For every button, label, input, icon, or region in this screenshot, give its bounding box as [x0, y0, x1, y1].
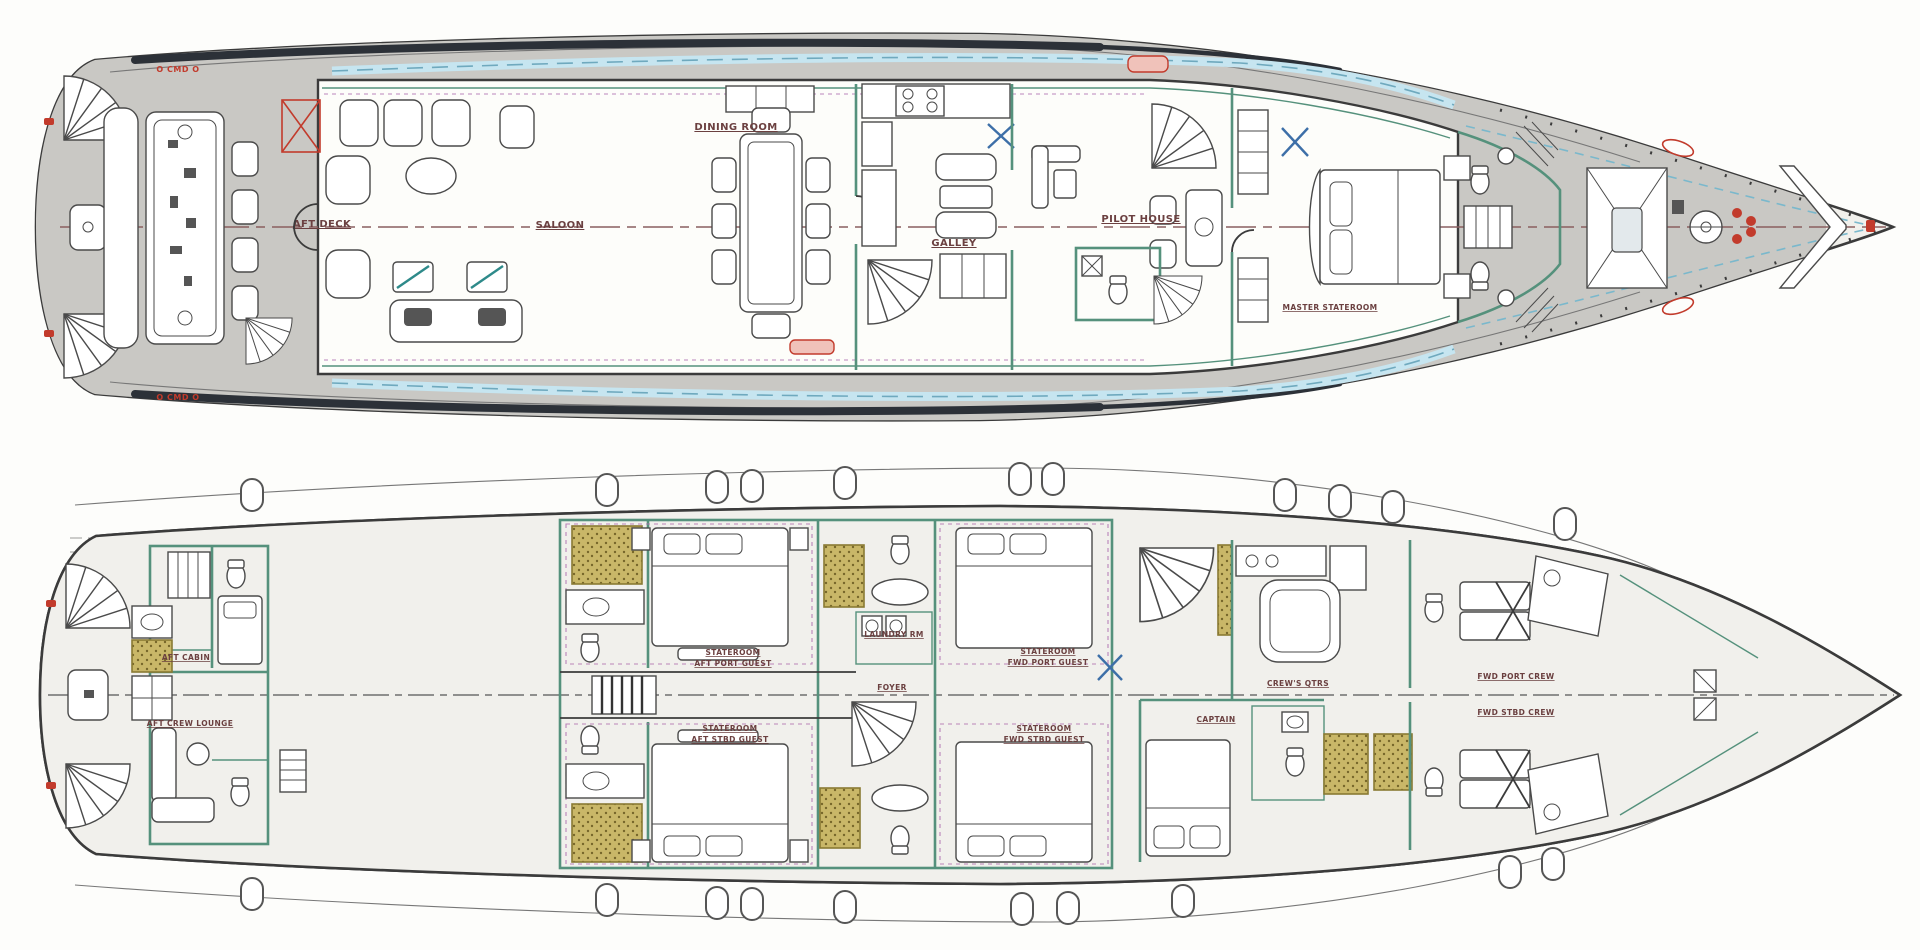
lounge-chair: [326, 250, 370, 298]
fridge: [862, 122, 892, 166]
nightstand: [1444, 156, 1470, 180]
label-sr-fwd-stbd-1: STATEROOM: [1017, 724, 1072, 733]
tub: [872, 785, 928, 811]
crew-head-toilet: [1425, 768, 1443, 796]
dinette-booth: [936, 154, 996, 238]
label-sr-fwd-port-1: STATEROOM: [1021, 647, 1076, 656]
crew-toilet-2: [231, 778, 249, 806]
mess-cabinet: [1330, 546, 1366, 590]
armchair: [500, 106, 534, 148]
captain-bed: [1146, 740, 1230, 856]
label-sr-aft-port-1: STATEROOM: [706, 648, 761, 657]
sink: [1498, 290, 1514, 306]
crew-companionway: [168, 552, 210, 598]
side-table: [467, 262, 507, 292]
main-deck-plan: AFT DECK O CMD O O CMD O: [36, 30, 1893, 430]
engine-room-ladder: [280, 750, 306, 792]
crew-head-toilet: [1425, 594, 1443, 622]
label-saloon: SALOON: [536, 220, 585, 231]
stateroom-fwd-port: STATEROOM FWD PORT GUEST: [940, 524, 1108, 667]
label-aft-deck: AFT DECK: [293, 219, 352, 230]
label-dining-room: DINING ROOM: [694, 122, 777, 133]
closet: [1238, 258, 1268, 322]
helm-chair: [1150, 240, 1176, 268]
guest-bed: [652, 744, 788, 862]
label-aft-crew-lounge: AFT CREW LOUNGE: [147, 719, 233, 728]
label-foyer: FOYER: [877, 683, 907, 692]
label-sr-fwd-port-2: FWD PORT GUEST: [1008, 658, 1089, 667]
windlass: [1690, 211, 1722, 243]
coffee-table: [406, 158, 456, 194]
label-fwd-stbd-crew: FWD STBD CREW: [1477, 708, 1555, 717]
deck-fitting: [790, 340, 834, 354]
ensuite-toilet: [581, 634, 599, 662]
sink: [1498, 148, 1514, 164]
guest-bed: [956, 742, 1092, 862]
helm-wheel: [1195, 218, 1213, 236]
galley-island: [862, 170, 896, 246]
guest-bed: [652, 528, 788, 646]
deck-plans-svg: AFT DECK O CMD O O CMD O: [0, 0, 1920, 950]
label-cmd-stbd: O CMD O: [156, 393, 199, 402]
side-table: [393, 262, 433, 292]
label-captain: CAPTAIN: [1196, 715, 1235, 724]
mast-fitting: [1128, 56, 1168, 72]
nightstand: [1444, 274, 1470, 298]
scanned-deck-plan-page: AFT DECK O CMD O O CMD O: [0, 0, 1920, 950]
tub: [872, 579, 928, 605]
skylight-hatch: [1587, 168, 1667, 288]
label-laundry: LAUNDRY RM: [864, 630, 924, 639]
captain-toilet: [1286, 748, 1304, 776]
crew-lockers: [132, 676, 172, 720]
crew-toilet: [227, 560, 245, 588]
label-sr-fwd-stbd-2: FWD STBD GUEST: [1004, 735, 1085, 744]
label-aft-cabin: AFT CABIN: [162, 653, 210, 662]
pantry-cabinet: [940, 254, 1006, 298]
label-pilot-house: PILOT HOUSE: [1101, 214, 1180, 225]
label-sr-aft-stbd-1: STATEROOM: [703, 724, 758, 733]
guest-bed: [956, 528, 1092, 648]
armchair: [432, 100, 470, 146]
master-bed: [1310, 170, 1441, 284]
label-sr-aft-port-2: AFT PORT GUEST: [694, 659, 772, 668]
label-fwd-port-crew: FWD PORT CREW: [1477, 672, 1554, 681]
shared-shower-2: [1374, 734, 1412, 790]
corridor-steps: [592, 676, 656, 714]
stateroom-fwd-stbd: STATEROOM FWD STBD GUEST: [940, 724, 1108, 864]
stove: [896, 86, 944, 116]
label-crews-qtrs: CREW'S QTRS: [1267, 679, 1329, 688]
label-cmd-port: O CMD O: [156, 65, 199, 74]
armchair: [340, 100, 378, 146]
lounge-chair: [326, 156, 370, 204]
ensuite-toilet: [581, 726, 599, 754]
lower-deck-plan: AFT CABIN AFT CREW LOUNGE: [40, 463, 1912, 925]
armchair: [384, 100, 422, 146]
label-galley: GALLEY: [931, 238, 977, 249]
label-master-stateroom: MASTER STATEROOM: [1282, 303, 1377, 312]
transom-settee: [104, 108, 138, 348]
label-sr-aft-stbd-2: AFT STBD GUEST: [691, 735, 769, 744]
shared-shower: [1324, 734, 1368, 794]
